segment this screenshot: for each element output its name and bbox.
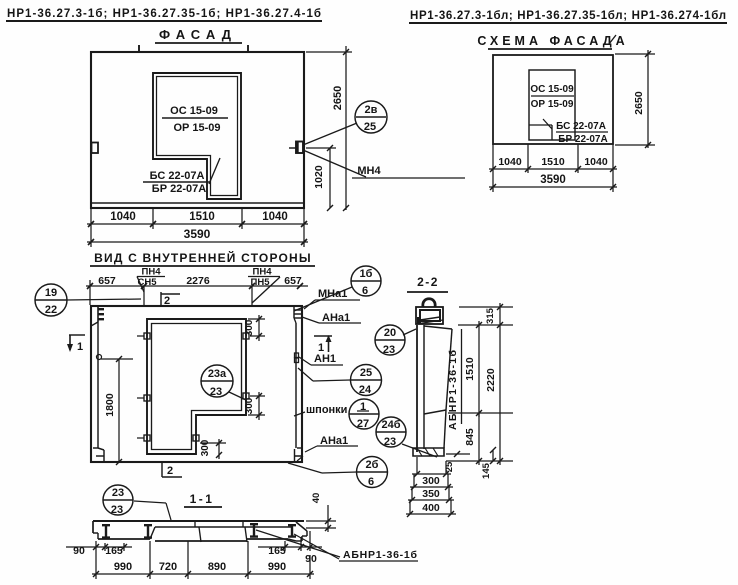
svg-text:23: 23 [111,504,123,516]
svg-text:НР1-36.27.3-1б; НР1-36.27.35-1: НР1-36.27.3-1б; НР1-36.27.35-1б; НР1-36.… [7,8,321,20]
svg-text:шпонки: шпонки [306,404,347,416]
svg-text:165: 165 [105,545,123,557]
svg-text:300: 300 [200,439,211,456]
svg-text:1: 1 [77,341,83,353]
svg-text:400: 400 [422,502,440,514]
svg-text:1040: 1040 [262,211,288,223]
svg-text:23: 23 [384,436,396,448]
svg-text:2650: 2650 [633,91,645,115]
svg-text:СН5: СН5 [137,277,157,288]
svg-text:БР 22-07А: БР 22-07А [152,183,206,195]
svg-text:25: 25 [364,121,376,133]
svg-text:МН4: МН4 [357,165,381,177]
svg-text:ПН5: ПН5 [251,277,271,288]
svg-text:22: 22 [45,304,57,316]
svg-text:2: 2 [167,465,173,477]
svg-text:23а: 23а [208,368,227,380]
svg-text:25: 25 [360,367,372,379]
svg-text:АН1: АН1 [314,353,336,365]
svg-text:657: 657 [98,275,116,287]
svg-text:1510: 1510 [541,156,565,168]
svg-text:845: 845 [464,428,476,446]
svg-text:1б: 1б [360,268,373,280]
svg-text:23: 23 [210,386,222,398]
svg-text:145: 145 [481,462,492,479]
svg-text:2в: 2в [365,104,378,116]
svg-text:27: 27 [357,418,369,430]
svg-text:1800: 1800 [104,393,116,417]
svg-text:АНа1: АНа1 [322,312,350,324]
svg-text:СХЕМА ФАСАДА: СХЕМА ФАСАДА [477,34,628,48]
svg-text:2220: 2220 [485,368,497,392]
svg-text:300: 300 [422,475,440,487]
svg-text:2650: 2650 [332,86,344,110]
svg-text:1040: 1040 [110,211,136,223]
svg-text:2-2: 2-2 [417,275,439,289]
svg-text:90: 90 [305,553,317,565]
svg-text:ОР 15-09: ОР 15-09 [173,122,220,134]
svg-text:890: 890 [208,561,226,573]
svg-text:24: 24 [359,384,372,396]
svg-text:ОР 15-09: ОР 15-09 [531,99,574,110]
svg-text:40: 40 [311,493,322,504]
svg-text:19: 19 [45,287,57,299]
svg-text:3590: 3590 [540,174,566,186]
svg-text:АНа1: АНа1 [320,435,348,447]
svg-text:90: 90 [73,545,85,557]
svg-text:6: 6 [362,285,368,297]
svg-text:БС 22-07А: БС 22-07А [150,170,205,182]
svg-text:24б: 24б [381,419,400,431]
svg-text:ОС 15-09: ОС 15-09 [170,105,218,117]
svg-text:990: 990 [268,561,286,573]
svg-text:БР 22-07А: БР 22-07А [558,134,607,145]
svg-text:350: 350 [422,488,440,500]
svg-text:720: 720 [159,561,177,573]
svg-text:БС 22-07А: БС 22-07А [556,121,606,132]
svg-text:2: 2 [164,295,170,307]
svg-text:1-1: 1-1 [190,492,215,506]
svg-text:НР1-36.27.3-1бл; НР1-36.27.35-: НР1-36.27.3-1бл; НР1-36.27.35-1бл; НР1-3… [410,10,726,22]
svg-text:3590: 3590 [184,227,211,241]
svg-text:1020: 1020 [313,165,325,189]
svg-text:1510: 1510 [464,357,476,381]
svg-text:300: 300 [244,319,255,336]
svg-text:657: 657 [284,275,302,287]
svg-text:6: 6 [368,476,374,488]
svg-text:23: 23 [383,344,395,356]
svg-text:1040: 1040 [498,156,522,168]
svg-text:МНа1: МНа1 [318,288,347,300]
svg-text:АБНР1-36-1б: АБНР1-36-1б [343,549,418,561]
svg-text:ПН4: ПН4 [253,267,273,278]
svg-text:23: 23 [112,487,124,499]
svg-text:ОС 15-09: ОС 15-09 [530,84,574,95]
svg-text:АБНР1-36-1б: АБНР1-36-1б [447,350,459,431]
svg-text:315: 315 [485,307,496,324]
svg-text:165: 165 [268,545,286,557]
svg-text:2276: 2276 [186,275,210,287]
svg-text:ПН4: ПН4 [142,267,162,278]
svg-text:1040: 1040 [584,156,608,168]
svg-text:20: 20 [384,327,396,339]
svg-text:1510: 1510 [189,211,215,223]
svg-text:2б: 2б [366,459,379,471]
svg-text:ВИД С ВНУТРЕННЕЙ СТОРОНЫ: ВИД С ВНУТРЕННЕЙ СТОРОНЫ [94,250,312,265]
svg-text:990: 990 [114,561,132,573]
svg-text:ФАСАД: ФАСАД [159,27,237,42]
